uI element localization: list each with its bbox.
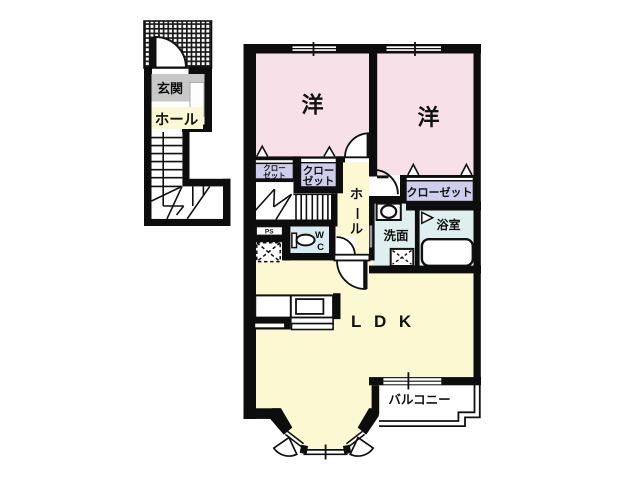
svg-text:洋: 洋 xyxy=(417,105,439,130)
svg-text:洗面: 洗面 xyxy=(383,228,409,243)
svg-text:PS: PS xyxy=(265,229,274,236)
svg-text:ル: ル xyxy=(350,222,363,237)
svg-text:ホール: ホール xyxy=(155,112,199,129)
svg-text:クローゼット: クローゼット xyxy=(407,185,473,199)
svg-text:W: W xyxy=(315,230,324,241)
svg-text:洋: 洋 xyxy=(301,93,323,118)
svg-text:LDK: LDK xyxy=(351,312,424,331)
svg-text:バルコニー: バルコニー xyxy=(388,393,450,407)
svg-text:C: C xyxy=(317,242,324,253)
svg-text:ゼット: ゼット xyxy=(263,170,286,180)
svg-text:浴室: 浴室 xyxy=(436,217,460,232)
svg-text:ホ: ホ xyxy=(350,187,363,202)
svg-text:玄関: 玄関 xyxy=(157,81,183,96)
svg-text:ゼット: ゼット xyxy=(303,175,335,188)
svg-text:ー: ー xyxy=(350,207,365,220)
